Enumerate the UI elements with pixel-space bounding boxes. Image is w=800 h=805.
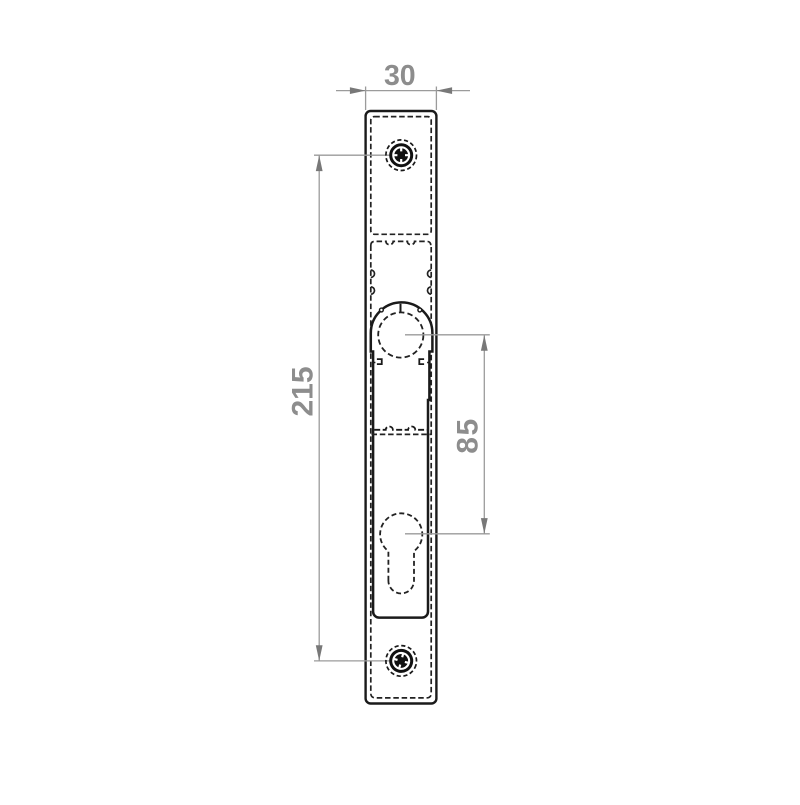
svg-text:215: 215 xyxy=(286,366,319,416)
svg-text:30: 30 xyxy=(384,60,416,92)
svg-text:85: 85 xyxy=(452,417,485,453)
